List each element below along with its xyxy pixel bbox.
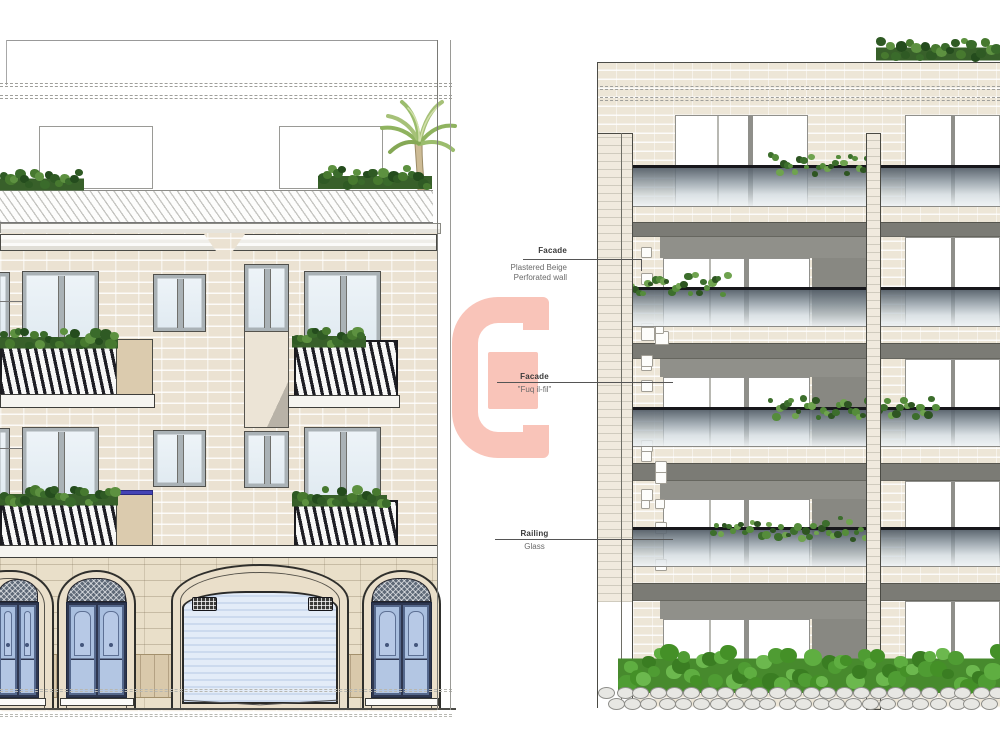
annotation-text: Glass xyxy=(492,542,577,552)
annotation-title: Railing xyxy=(492,529,577,538)
annotation-title: Facade xyxy=(455,246,567,255)
annotation-text: Plastered Beige xyxy=(455,263,567,273)
elevation-sheet: Facade Plastered Beige Perforated wall F… xyxy=(0,0,1000,750)
leader-tick xyxy=(641,259,642,271)
leader-line xyxy=(497,382,673,383)
annotation-text: Perforated wall xyxy=(455,273,567,283)
annotation-layer: Facade Plastered Beige Perforated wall F… xyxy=(0,0,1000,750)
annotation-title: Facade xyxy=(492,372,577,381)
leader-line xyxy=(523,259,642,260)
leader-line xyxy=(495,539,673,540)
annotation-text: "Fuq il-fil" xyxy=(488,385,581,395)
